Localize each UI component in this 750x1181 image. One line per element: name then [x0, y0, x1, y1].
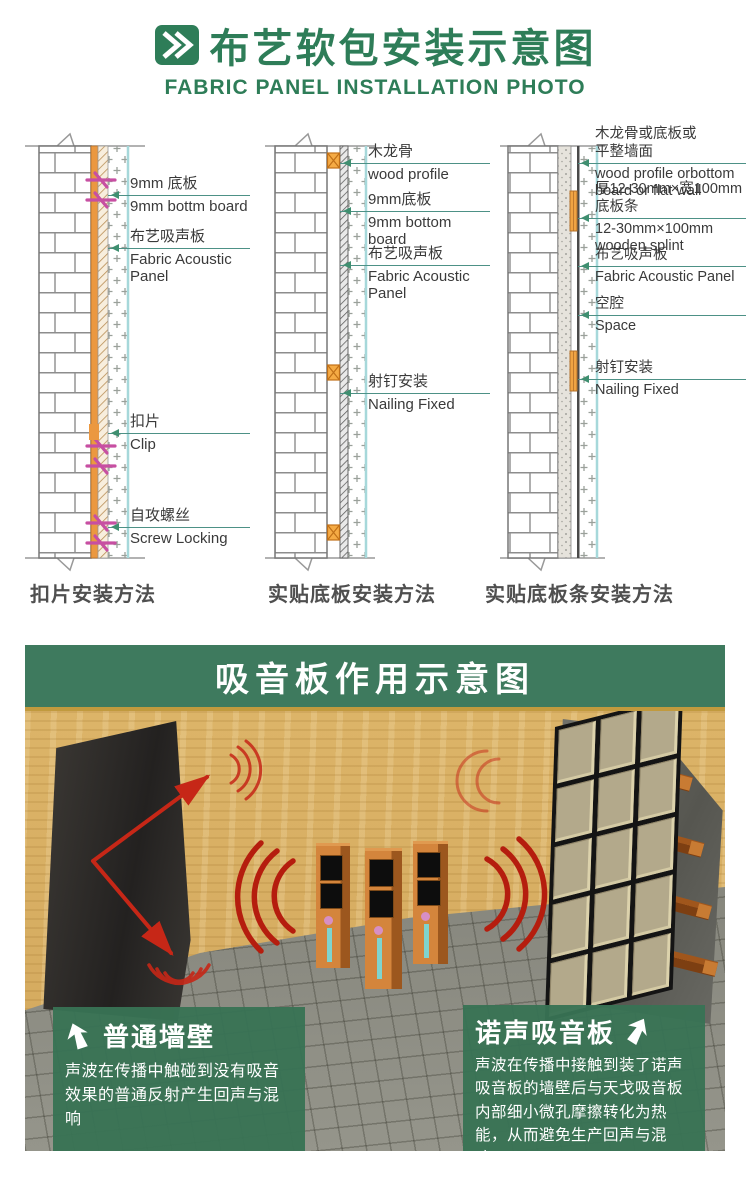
- callout-heading: 普通墙壁: [103, 1017, 215, 1054]
- label-bottom-board: 9mm底板 9mm bottom board: [340, 191, 490, 248]
- diagram-caption: 实贴底板条安装方法: [485, 578, 674, 607]
- title-row: 布艺软包安装示意图: [0, 16, 750, 74]
- label-wood-profile: 木龙骨 wood profile: [340, 143, 490, 183]
- leader-line: [108, 527, 250, 528]
- reflection-arrow-down: [93, 861, 171, 953]
- leader-line: [340, 393, 490, 394]
- reflection-arrow-up: [93, 777, 207, 861]
- diagram-clip-method: 9mm 底板 9mm bottm board 布艺吸声板 Fabric Acou…: [25, 120, 253, 630]
- acoustic-panel-callout: 诺声吸音板 声波在传播中接触到装了诺声吸音板的墙壁后与天戈吸音板内部细小微孔摩擦…: [463, 1005, 705, 1151]
- leader-line: [340, 211, 490, 212]
- diagram-board-method: 木龙骨 wood profile 9mm底板 9mm bottom board …: [250, 120, 480, 630]
- arc-cluster-floor: [149, 965, 209, 983]
- arrow-up-right-icon: [625, 1016, 653, 1048]
- illustration-title: 吸音板作用示意图: [215, 652, 535, 701]
- room-scene: 普通墙壁 声波在传播中触碰到没有吸音效果的普通反射产生回声与混响 诺声吸音板 声…: [25, 711, 725, 1151]
- leader-line: [578, 163, 746, 164]
- label-bottom-board: 9mm 底板 9mm bottm board: [108, 175, 250, 215]
- page-subtitle: FABRIC PANEL INSTALLATION PHOTO: [0, 76, 750, 100]
- callout-body: 声波在传播中触碰到没有吸音效果的普通反射产生回声与混响: [65, 1060, 293, 1132]
- label-fabric-panel: 布艺吸声板 Fabric Acoustic Panel: [108, 228, 250, 285]
- leader-line: [108, 195, 250, 196]
- product-installation-image: 布艺软包安装示意图 FABRIC PANEL INSTALLATION PHOT…: [0, 0, 750, 1181]
- label-wooden-splint: 厚12-30mm×宽100mm底板条 12-30mm×100mm wooden …: [578, 180, 746, 255]
- plain-wall-callout: 普通墙壁 声波在传播中触碰到没有吸音效果的普通反射产生回声与混响: [53, 1007, 305, 1151]
- label-fabric-panel: 布艺吸声板 Fabric Acoustic Panel: [578, 246, 746, 286]
- leader-line: [578, 379, 746, 380]
- leader-line: [578, 218, 746, 219]
- leader-line: [578, 266, 746, 267]
- label-clip: 扣片 Clip: [108, 413, 250, 453]
- label-nailing: 射钉安装 Nailing Fixed: [578, 359, 746, 399]
- installation-diagrams: 9mm 底板 9mm bottm board 布艺吸声板 Fabric Acou…: [0, 120, 750, 630]
- leader-line: [340, 163, 490, 164]
- illustration-banner: 吸音板作用示意图: [25, 645, 725, 711]
- leader-line: [578, 315, 746, 316]
- acoustic-panel-tiles: [545, 711, 683, 1022]
- header: 布艺软包安装示意图 FABRIC PANEL INSTALLATION PHOT…: [0, 16, 750, 100]
- arc-cluster-near-panel: [457, 751, 499, 811]
- leader-line: [108, 248, 250, 249]
- diagram-caption: 扣片安装方法: [30, 578, 156, 607]
- page-title: 布艺软包安装示意图: [210, 16, 597, 74]
- label-screw: 自攻螺丝 Screw Locking: [108, 507, 250, 547]
- label-nailing: 射钉安装 Nailing Fixed: [340, 373, 490, 413]
- leader-line: [340, 265, 490, 266]
- speaker-left: [316, 846, 350, 968]
- label-space: 空腔 Space: [578, 295, 746, 335]
- callout-heading: 诺声吸音板: [475, 1013, 615, 1050]
- arrow-up-left-icon: [65, 1020, 93, 1052]
- acoustic-effect-illustration: 吸音板作用示意图: [25, 645, 725, 1151]
- double-chevron-icon: [154, 22, 200, 68]
- glue-blob: [89, 424, 99, 440]
- diagram-splint-method: 木龙骨或底板或平整墙面 wood profile orbottom board …: [480, 120, 750, 630]
- label-fabric-panel: 布艺吸声板 Fabric Acoustic Panel: [340, 245, 490, 302]
- speaker-right: [413, 844, 448, 964]
- leader-line: [108, 433, 250, 434]
- diagram-caption: 实贴底板安装方法: [268, 578, 436, 607]
- speaker-center: [365, 851, 402, 989]
- callout-body: 声波在传播中接触到装了诺声吸音板的墙壁后与天戈吸音板内部细小微孔摩擦转化为热能，…: [475, 1054, 693, 1151]
- arc-cluster-left-of-speakers: [238, 843, 293, 951]
- wood-profile-blocks: [328, 153, 340, 540]
- arc-cluster-top: [231, 741, 261, 799]
- arc-cluster-right-of-speakers: [487, 839, 545, 949]
